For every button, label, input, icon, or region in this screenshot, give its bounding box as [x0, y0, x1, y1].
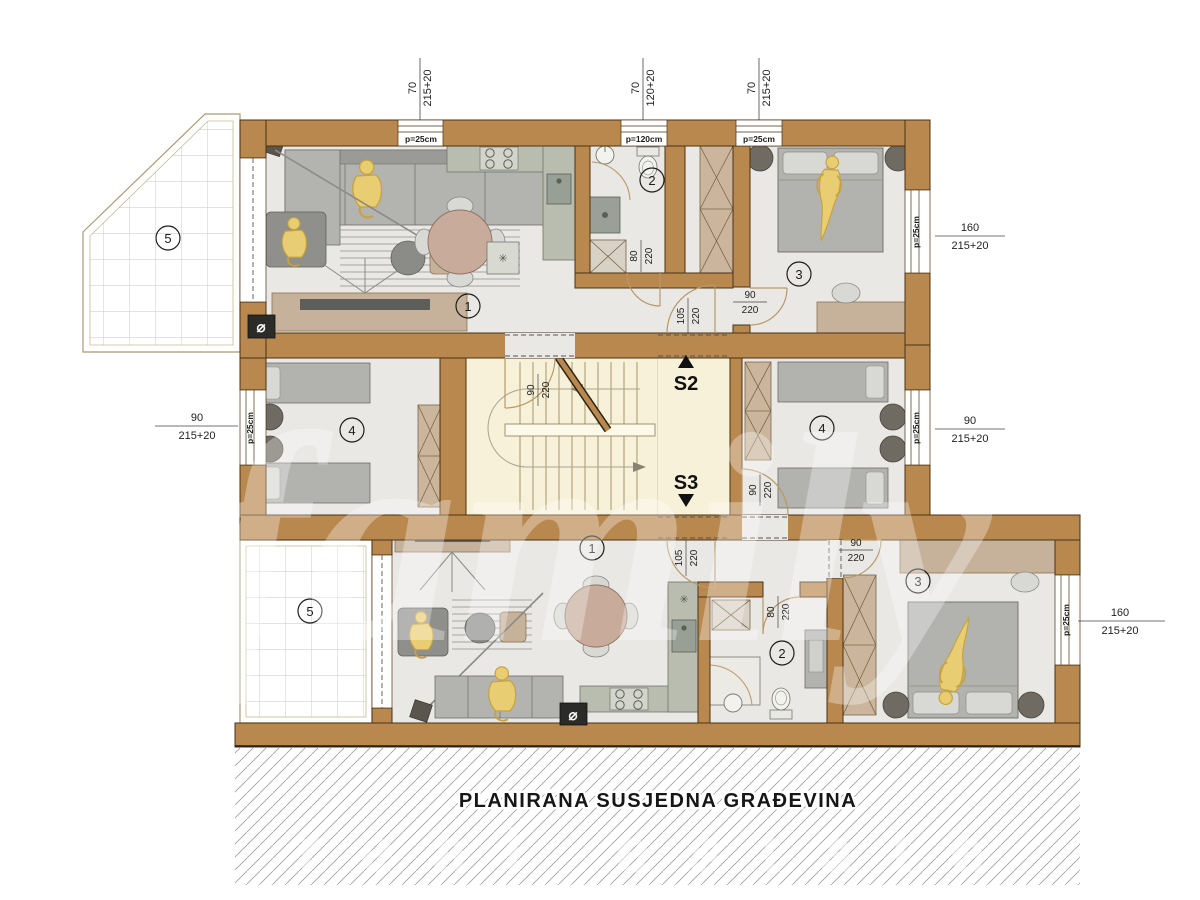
shaft-top: ⌀	[248, 315, 275, 338]
tv	[300, 299, 430, 310]
desk	[817, 302, 905, 333]
pillow	[783, 152, 827, 174]
svg-text:215+20: 215+20	[422, 69, 434, 106]
shaft-symbol: ⌀	[568, 707, 577, 724]
window-top-3: p=25cm	[736, 120, 782, 146]
washing-machine	[590, 240, 626, 273]
shaft-symbol: ⌀	[256, 319, 265, 336]
dim-top-2: 70 120+20	[630, 58, 657, 120]
nightstand	[747, 145, 773, 171]
svg-text:3: 3	[795, 267, 802, 282]
svg-text:105: 105	[676, 307, 687, 324]
svg-text:215+20: 215+20	[1101, 625, 1138, 637]
terrace-glass-top	[240, 158, 266, 302]
parapet-label: p=25cm	[405, 134, 437, 144]
window-right-bed3-top: p=25cm	[905, 190, 930, 273]
svg-text:215+20: 215+20	[761, 69, 773, 106]
parapet-label: p=120cm	[626, 134, 663, 144]
floor-plan-drawing: ✳	[0, 0, 1200, 900]
hall-wardrobe-top	[700, 146, 733, 273]
dim-top-1: 70 215+20	[407, 58, 434, 120]
stove	[480, 147, 518, 170]
watermark-primary: family	[208, 373, 994, 706]
svg-text:70: 70	[630, 82, 642, 94]
terrace-top-left	[83, 114, 240, 352]
parapet-label: p=25cm	[1061, 604, 1071, 636]
svg-text:220: 220	[691, 307, 702, 324]
tv-sideboard	[272, 293, 467, 331]
svg-text:5: 5	[164, 231, 171, 246]
freezer-symbol: ✳	[498, 253, 507, 265]
watermark-secondary: real estate	[298, 817, 1023, 886]
svg-text:215+20: 215+20	[951, 240, 988, 252]
window-top-1: p=25cm	[398, 120, 443, 146]
svg-text:70: 70	[407, 82, 419, 94]
opening-bed4-left	[505, 333, 575, 358]
svg-text:90: 90	[191, 412, 203, 424]
nightstand	[1018, 692, 1044, 718]
desk-chair	[832, 283, 860, 303]
parapet-label: p=25cm	[911, 216, 921, 248]
dim-top-3: 70 215+20	[746, 58, 773, 120]
svg-text:1: 1	[464, 299, 471, 314]
dim-right-top: 160 215+20	[935, 222, 1005, 252]
floor-plan-page: ✳	[0, 0, 1200, 900]
svg-text:2: 2	[648, 173, 655, 188]
svg-text:160: 160	[961, 222, 979, 234]
svg-text:120+20: 120+20	[645, 69, 657, 106]
window-right-bed3-bottom: p=25cm	[1055, 575, 1080, 665]
window-top-2: p=120cm	[621, 120, 667, 146]
svg-text:220: 220	[644, 247, 655, 264]
svg-text:80: 80	[629, 250, 640, 262]
svg-text:70: 70	[746, 82, 758, 94]
svg-text:90: 90	[744, 290, 756, 301]
shaft-bottom: ⌀	[560, 703, 587, 725]
pillow	[834, 152, 878, 174]
wardrobe	[700, 146, 733, 273]
svg-text:160: 160	[1111, 607, 1129, 619]
neighbor-area: real estate PLANIRANA SUSJEDNA GRAĐEVINA	[235, 747, 1080, 886]
dim-right-bottom: 160 215+20	[1078, 607, 1165, 637]
desk-chair	[1011, 572, 1039, 592]
parapet-label: p=25cm	[743, 134, 775, 144]
neighbor-label: PLANIRANA SUSJEDNA GRAĐEVINA	[459, 790, 857, 812]
svg-text:220: 220	[742, 305, 759, 316]
